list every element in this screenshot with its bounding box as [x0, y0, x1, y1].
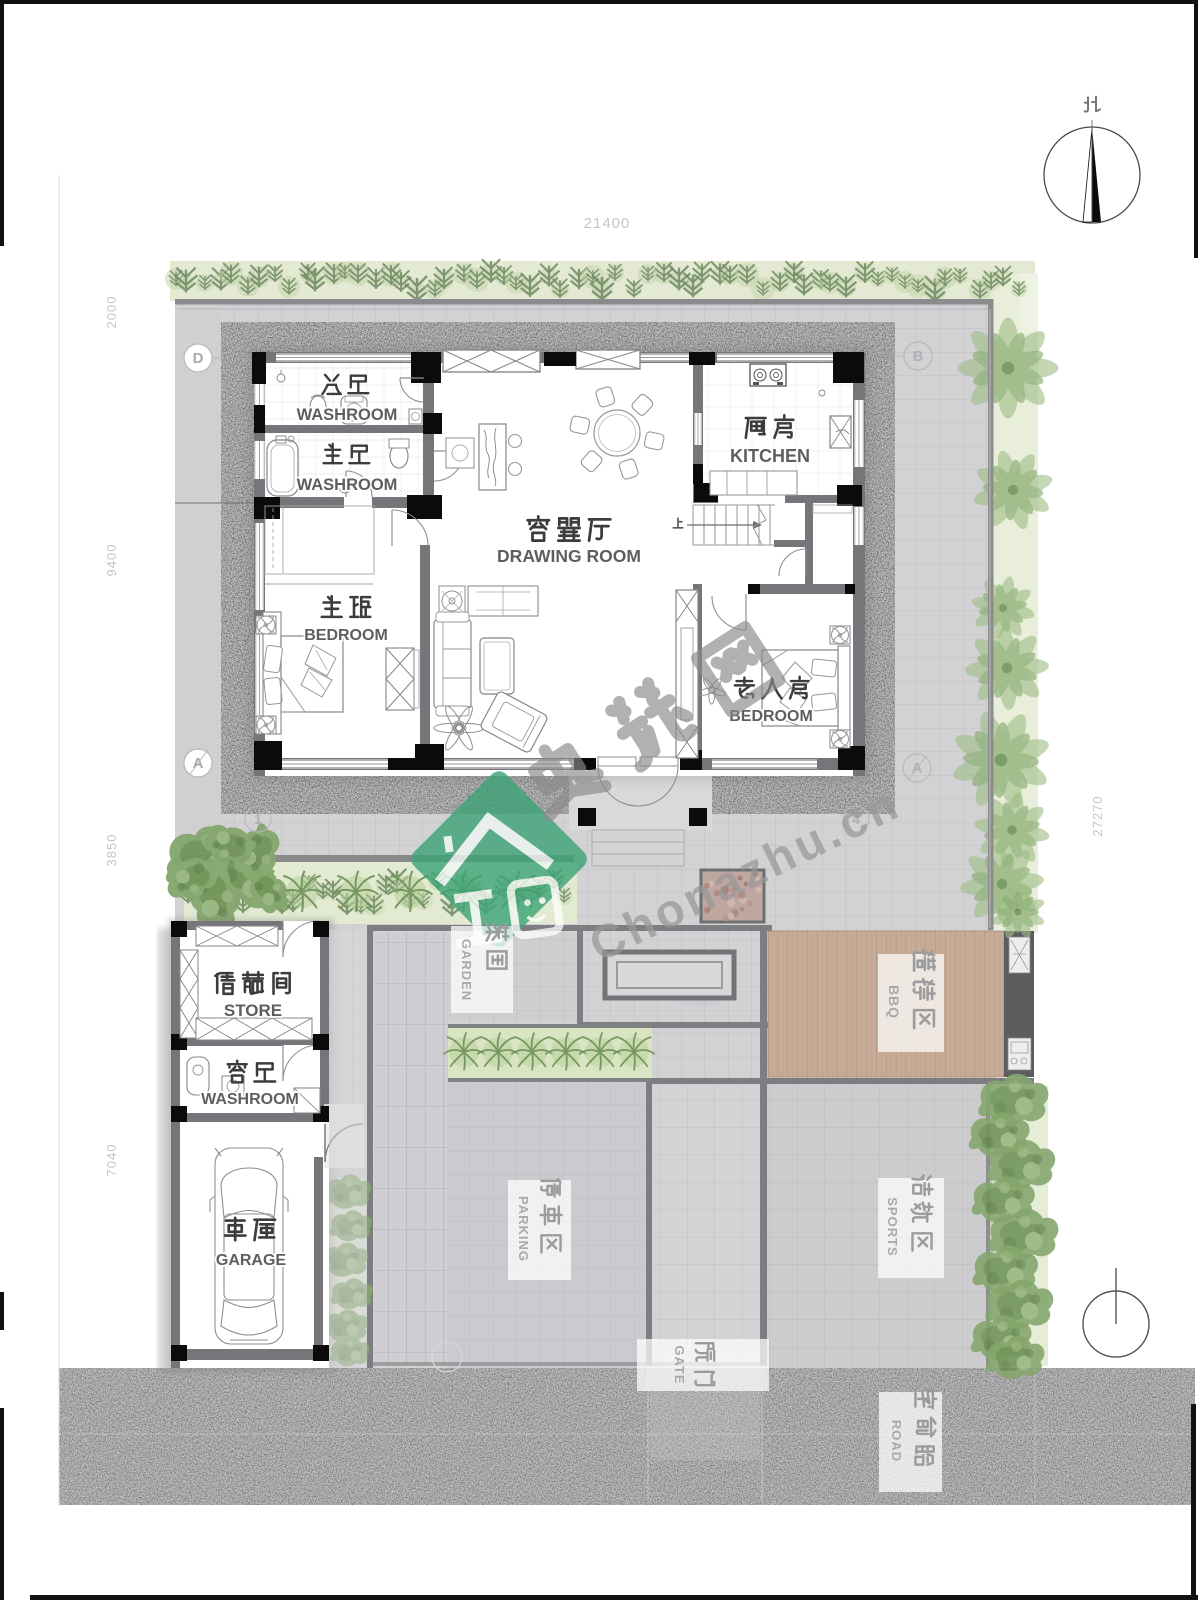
svg-text:B: B [913, 348, 924, 365]
svg-text:BEDROOM: BEDROOM [304, 627, 388, 644]
svg-text:WASHROOM: WASHROOM [297, 476, 398, 494]
svg-text:3850: 3850 [104, 834, 119, 867]
svg-text:GARDEN: GARDEN [459, 939, 474, 1001]
svg-text:1: 1 [254, 811, 262, 827]
svg-text:21400: 21400 [584, 215, 631, 232]
svg-text:PARKING: PARKING [516, 1196, 531, 1262]
svg-text:27270: 27270 [1090, 795, 1105, 836]
svg-text:WASHROOM: WASHROOM [297, 406, 398, 424]
svg-text:GATE: GATE [672, 1345, 687, 1384]
svg-text:STORE: STORE [224, 1001, 282, 1020]
svg-text:BBQ: BBQ [886, 985, 902, 1019]
svg-text:DRAWING ROOM: DRAWING ROOM [497, 546, 641, 566]
svg-text:SPORTS: SPORTS [885, 1197, 900, 1256]
svg-text:KITCHEN: KITCHEN [730, 446, 810, 466]
svg-text:GARAGE: GARAGE [216, 1252, 287, 1269]
svg-text:WASHROOM: WASHROOM [201, 1091, 299, 1108]
svg-text:7040: 7040 [104, 1144, 119, 1177]
svg-text:ROAD: ROAD [889, 1420, 904, 1462]
svg-text:2000: 2000 [104, 296, 119, 329]
svg-text:D: D [193, 350, 204, 367]
svg-text:9400: 9400 [104, 544, 119, 577]
